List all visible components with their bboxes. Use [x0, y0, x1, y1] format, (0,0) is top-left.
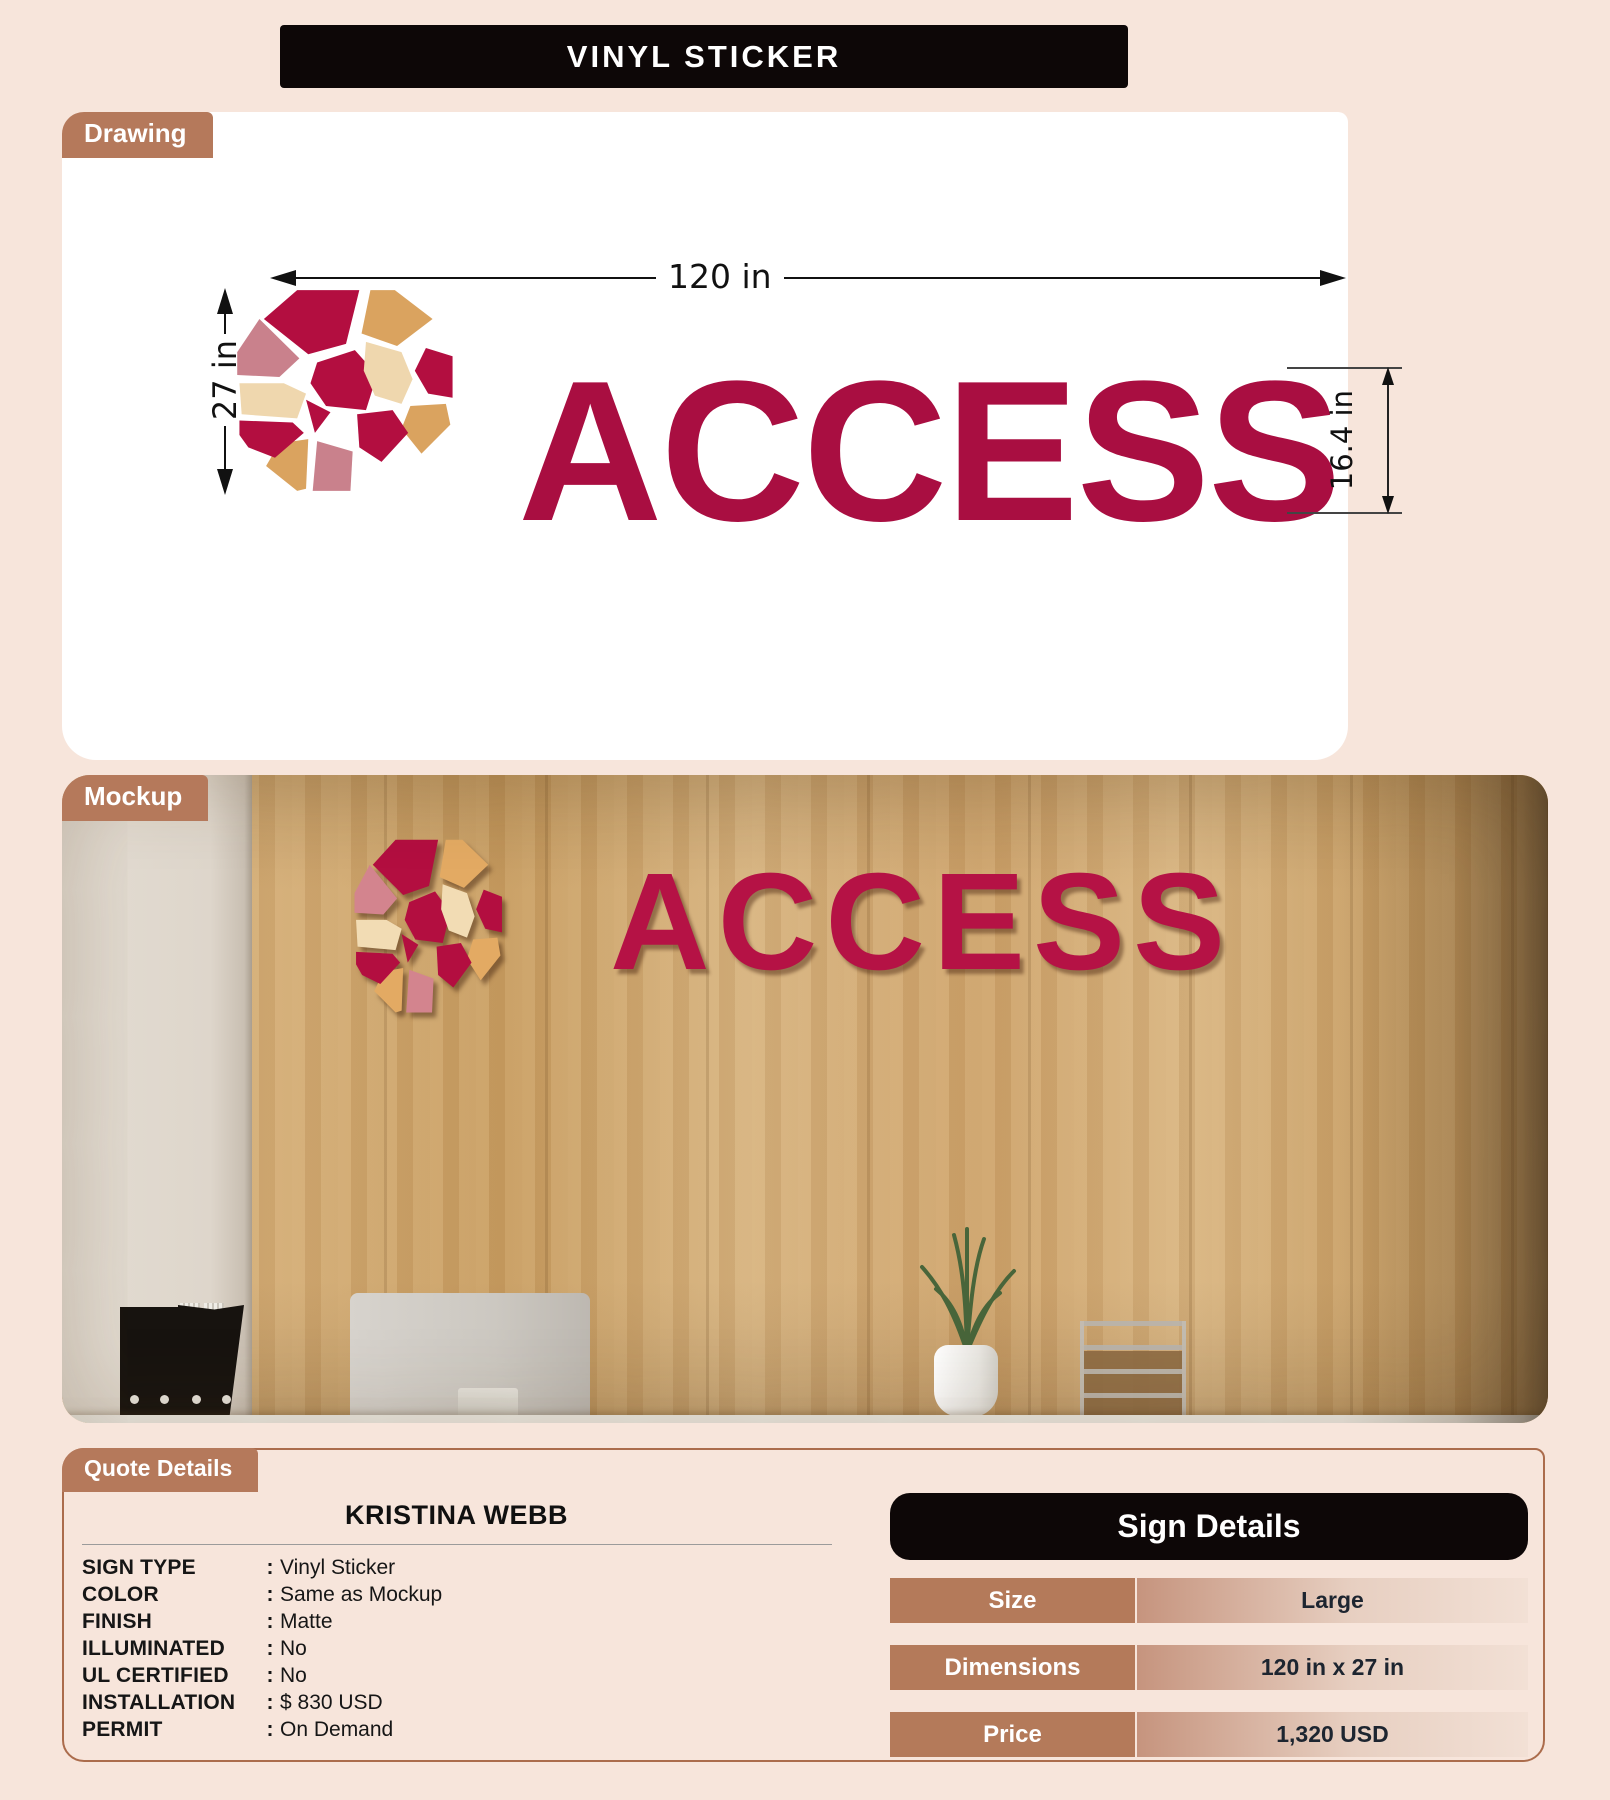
divider: [82, 1544, 832, 1545]
quote-row-value: Same as Mockup: [280, 1583, 442, 1607]
plant-pot: [934, 1345, 998, 1417]
binder-box: [120, 1307, 178, 1417]
colon-separator: :: [260, 1718, 280, 1742]
mosaic-octagon-icon: [353, 838, 505, 1016]
quote-row-value: No: [280, 1637, 307, 1661]
quote-row-value: Vinyl Sticker: [280, 1556, 395, 1580]
arrow-left-icon: [270, 270, 296, 286]
quote-row-illuminated: ILLUMINATED : No: [82, 1635, 822, 1662]
colon-separator: :: [260, 1637, 280, 1661]
arrow-down-icon: [1382, 496, 1394, 514]
quote-row-color: COLOR : Same as Mockup: [82, 1581, 822, 1608]
colon-separator: :: [260, 1556, 280, 1580]
quote-rows: SIGN TYPE : Vinyl Sticker COLOR : Same a…: [82, 1554, 822, 1743]
sign-details-row-label: Size: [890, 1578, 1135, 1623]
quote-row-label: SIGN TYPE: [82, 1556, 260, 1580]
vinyl-sticker-quote-page: { "title": "VINYL STICKER", "drawing": {…: [0, 0, 1610, 1800]
file-binders: [120, 1303, 244, 1417]
dimension-line: [224, 314, 227, 334]
access-logo-mark: [235, 288, 457, 495]
quote-row-value: On Demand: [280, 1718, 393, 1742]
quote-row-label: ILLUMINATED: [82, 1637, 260, 1661]
mockup-tab: Mockup: [62, 775, 208, 821]
quote-row-label: PERMIT: [82, 1718, 260, 1742]
mosaic-octagon-icon: [235, 288, 457, 495]
sign-details-row-label: Dimensions: [890, 1645, 1135, 1690]
sign-details-row-label: Price: [890, 1712, 1135, 1757]
dimension-line: [784, 277, 1320, 280]
sign-details-row-value: 1,320 USD: [1137, 1712, 1528, 1757]
quote-row-finish: FINISH : Matte: [82, 1608, 822, 1635]
quote-row-value: No: [280, 1664, 307, 1688]
sign-details-row-size: Size Large: [890, 1578, 1528, 1623]
quote-row-installation: INSTALLATION : $ 830 USD: [82, 1689, 822, 1716]
colon-separator: :: [260, 1691, 280, 1715]
arrow-up-icon: [1382, 367, 1394, 385]
access-wordmark: ACCESS: [518, 352, 1340, 552]
plant-icon: [892, 1227, 1042, 1352]
arrow-up-icon: [217, 288, 233, 314]
sign-details-row-dimensions: Dimensions 120 in x 27 in: [890, 1645, 1528, 1690]
binder-hole: [222, 1395, 231, 1404]
mockup-tab-label: Mockup: [84, 781, 182, 812]
desk-surface: [62, 1415, 1548, 1423]
quote-row-label: FINISH: [82, 1610, 260, 1634]
arrow-right-icon: [1320, 270, 1346, 286]
quote-row-permit: PERMIT : On Demand: [82, 1716, 822, 1743]
page-title-text: VINYL STICKER: [567, 39, 841, 75]
arrow-down-icon: [217, 469, 233, 495]
dimension-line: [224, 426, 227, 469]
quote-row-sign-type: SIGN TYPE : Vinyl Sticker: [82, 1554, 822, 1581]
sign-details-row-price: Price 1,320 USD: [890, 1712, 1528, 1757]
mockup-access-wordmark: ACCESS: [610, 853, 1233, 991]
quote-row-label: COLOR: [82, 1583, 260, 1607]
monitor-back: [350, 1293, 590, 1423]
quote-details-tab-label: Quote Details: [84, 1455, 232, 1482]
quote-row-value: Matte: [280, 1610, 333, 1634]
quote-row-ul-certified: UL CERTIFIED : No: [82, 1662, 822, 1689]
text-height-dimension: [1380, 367, 1396, 514]
quote-details-tab: Quote Details: [62, 1448, 258, 1492]
width-dimension: 120 in: [270, 266, 1346, 290]
drawing-tab-label: Drawing: [84, 118, 187, 149]
sign-details-header: Sign Details: [890, 1493, 1528, 1560]
paper-tray: [1080, 1321, 1186, 1417]
sign-details-row-value: 120 in x 27 in: [1137, 1645, 1528, 1690]
binder-hole: [130, 1395, 139, 1404]
wall-shadow: [1342, 775, 1548, 1423]
drawing-section: Drawing 120 in 27 in: [62, 112, 1348, 760]
sign-details-row-value: Large: [1137, 1578, 1528, 1623]
customer-name: KRISTINA WEBB: [79, 1500, 834, 1531]
quote-row-label: INSTALLATION: [82, 1691, 260, 1715]
text-height-dimension-label-box: 16.4 in: [1320, 367, 1364, 514]
mockup-section: ACCESS Mockup: [62, 775, 1548, 1423]
sign-details-header-label: Sign Details: [1117, 1508, 1300, 1545]
colon-separator: :: [260, 1583, 280, 1607]
quote-row-value: $ 830 USD: [280, 1691, 383, 1715]
binder-hole: [192, 1395, 201, 1404]
dimension-line: [1387, 385, 1389, 496]
page-title: VINYL STICKER: [280, 25, 1128, 88]
colon-separator: :: [260, 1664, 280, 1688]
width-dimension-label: 120 in: [656, 257, 784, 296]
colon-separator: :: [260, 1610, 280, 1634]
binder-box: [178, 1305, 244, 1417]
mockup-logo-mark: [353, 838, 505, 1016]
binder-hole: [160, 1395, 169, 1404]
dimension-line: [296, 277, 656, 280]
drawing-tab: Drawing: [62, 112, 213, 158]
text-height-dimension-label: 16.4 in: [1325, 390, 1359, 490]
quote-row-label: UL CERTIFIED: [82, 1664, 260, 1688]
